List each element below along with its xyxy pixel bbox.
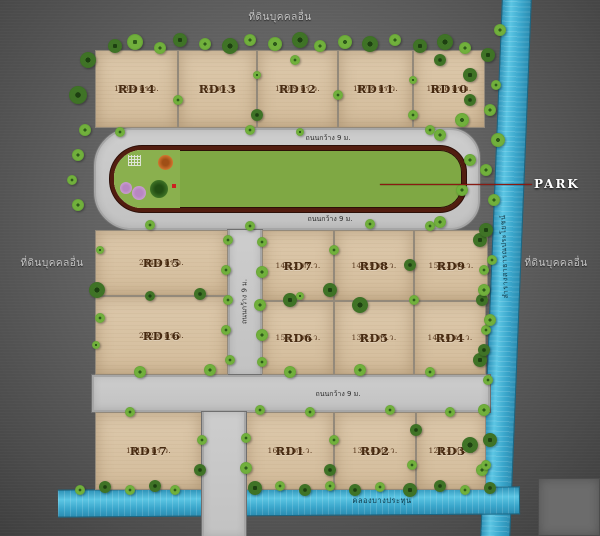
plot-area: 222.6 ตร.ว. (139, 330, 184, 342)
bush-icon (173, 95, 183, 105)
plot-area: 137.4 ตร.ว. (351, 332, 396, 344)
bush-icon (79, 124, 91, 136)
bush-icon (127, 34, 143, 50)
bush-icon (244, 34, 256, 46)
tree-icon (299, 484, 311, 496)
bush-icon (409, 76, 417, 84)
bush-icon (154, 42, 166, 54)
plot-RD2: RD2 130.6 ตร.ว. (334, 412, 416, 490)
tree-icon (80, 52, 96, 68)
bush-icon (268, 37, 282, 51)
bush-icon (329, 435, 339, 445)
plot-RD11: RD11 147.8 ตร.ว. (338, 50, 413, 128)
bush-icon (134, 366, 146, 378)
bush-icon (204, 364, 216, 376)
plot-RD15: RD15 234.4 ตร.ว. (95, 230, 228, 296)
tree-icon (149, 480, 161, 492)
plot-area: 165.3 ตร.ว. (267, 445, 312, 457)
bush-icon (407, 460, 417, 470)
tree-icon (150, 180, 168, 198)
bush-icon (223, 295, 233, 305)
bush-icon (275, 481, 285, 491)
bush-icon (72, 199, 84, 211)
plot-RD14: RD14 153.4 ตร.ว. (95, 50, 178, 128)
road-width-label-vertical: ถนนกว้าง 9 ม. (240, 252, 251, 352)
bush-icon (92, 341, 100, 349)
bush-icon (455, 113, 469, 127)
plot-RD8: RD8 143.9 ตร.ว. (334, 230, 414, 301)
plot-area: 150.9 ตร.ว. (275, 83, 320, 95)
autumn-tree-icon (158, 155, 173, 170)
plot-RD3: RD3 124.4 ตร.ว. (416, 412, 486, 490)
bush-icon (385, 405, 395, 415)
bush-icon (296, 292, 304, 300)
plot-area: 147.8 ตร.ว. (353, 83, 398, 95)
bush-icon (434, 129, 446, 141)
tree-icon (478, 344, 490, 356)
tree-icon (404, 259, 416, 271)
canal-bottom-label: คลองบางประทุน (322, 495, 442, 507)
bush-icon (434, 216, 446, 228)
park-leader-line (380, 184, 532, 185)
bush-icon (240, 462, 252, 474)
bush-icon (256, 266, 268, 278)
bush-icon (494, 24, 506, 36)
bush-icon (199, 38, 211, 50)
plot-area: 156.8 ตร.ว. (426, 83, 471, 95)
bush-icon (125, 485, 135, 495)
tree-icon (437, 34, 453, 50)
bush-icon (290, 55, 300, 65)
tree-icon (410, 424, 422, 436)
bush-icon (95, 313, 105, 323)
adjacent-land-label-top: ที่ดินบุคคลอื่น (200, 10, 360, 25)
bush-icon (221, 325, 231, 335)
tree-icon (173, 33, 187, 47)
bush-icon (96, 246, 104, 254)
bush-icon (329, 245, 339, 255)
bush-icon (225, 355, 235, 365)
bush-icon (256, 329, 268, 341)
road-width-label-north: ถนนกว้าง 9 ม. (278, 133, 378, 144)
bush-icon (365, 219, 375, 229)
bush-icon (481, 325, 491, 335)
bush-icon (484, 104, 496, 116)
bush-icon (459, 42, 471, 54)
bush-icon (480, 164, 492, 176)
plot-area: 145.2 ตร.ว. (275, 260, 320, 272)
bush-icon (67, 175, 77, 185)
tree-icon (89, 282, 105, 298)
bush-icon (170, 485, 180, 495)
bush-icon (460, 485, 470, 495)
bush-icon (491, 80, 501, 90)
tree-icon (413, 39, 427, 53)
tree-icon (483, 433, 497, 447)
plot-area: 155.7 ตร.ว. (275, 332, 320, 344)
bush-icon (478, 284, 490, 296)
bush-icon (478, 404, 490, 416)
vertical-road-bridge (202, 412, 246, 536)
bush-icon (481, 460, 491, 470)
tree-icon (324, 464, 336, 476)
bush-icon (72, 149, 84, 161)
bush-icon (464, 154, 476, 166)
plot-RD1: RD1 165.3 ตร.ว. (246, 412, 334, 490)
tree-icon (99, 481, 111, 493)
tree-icon (145, 291, 155, 301)
bush-icon (456, 184, 468, 196)
bush-icon (333, 90, 343, 100)
bush-icon (408, 110, 418, 120)
plot-area: 151.3 ตร.ว. (428, 260, 473, 272)
bush-icon (338, 35, 352, 49)
bush-icon (115, 127, 125, 137)
tree-icon (251, 109, 263, 121)
tree-icon (462, 437, 478, 453)
bush-icon (223, 235, 233, 245)
plot-area: 234.4 ตร.ว. (139, 257, 184, 269)
bush-icon (254, 299, 266, 311)
bush-icon (305, 407, 315, 417)
bush-icon (375, 482, 385, 492)
tree-icon (292, 32, 308, 48)
tree-icon (283, 293, 297, 307)
bush-icon (389, 34, 401, 46)
tree-icon (194, 464, 206, 476)
plot-RD10: RD10 156.8 ตร.ว. (413, 50, 485, 128)
bush-icon (75, 485, 85, 495)
bush-icon (491, 133, 505, 147)
adjacent-land-label-left: ที่ดินบุคคลอื่น (4, 256, 100, 271)
bush-icon (197, 435, 207, 445)
road-width-label-south: ถนนกว้าง 9 ม. (288, 389, 388, 400)
park-lawn-east (114, 150, 180, 208)
bush-icon (145, 220, 155, 230)
bush-icon (255, 405, 265, 415)
tree-icon (463, 68, 477, 82)
bush-icon (409, 295, 419, 305)
plot-RD6: RD6 155.7 ตร.ว. (262, 301, 334, 375)
tree-icon (248, 481, 262, 495)
bush-icon (241, 433, 251, 443)
bush-icon (354, 364, 366, 376)
bush-icon (325, 481, 335, 491)
blossom-tree-icon (120, 182, 132, 194)
park-marker-icon (172, 184, 176, 188)
tree-icon (349, 484, 361, 496)
tree-icon (194, 288, 206, 300)
tree-icon (479, 223, 493, 237)
tree-icon (403, 483, 417, 497)
bush-icon (245, 125, 255, 135)
tree-icon (108, 39, 122, 53)
bush-icon (296, 128, 304, 136)
tree-icon (362, 36, 378, 52)
park-label: PARK (534, 177, 580, 191)
bush-icon (488, 194, 500, 206)
bush-icon (487, 255, 497, 265)
bush-icon (445, 407, 455, 417)
bush-icon (484, 314, 496, 326)
bush-icon (425, 367, 435, 377)
blossom-tree-icon (132, 186, 146, 200)
plot-area: 140.6 ตร.ว. (427, 332, 472, 344)
plot-area: 143.9 ตร.ว. (351, 260, 396, 272)
tree-icon (481, 48, 495, 62)
bush-icon (257, 357, 267, 367)
bush-icon (221, 265, 231, 275)
tree-icon (434, 480, 446, 492)
tree-icon (464, 94, 476, 106)
plot-area: 191.4 ตร.ว. (126, 445, 171, 457)
lattice-icon (128, 155, 141, 166)
tree-icon (434, 54, 446, 66)
plot-RD5: RD5 137.4 ตร.ว. (334, 301, 414, 375)
bush-icon (245, 221, 255, 231)
tree-icon (352, 297, 368, 313)
bush-icon (253, 71, 261, 79)
tree-icon (69, 86, 87, 104)
bush-icon (483, 375, 493, 385)
bush-icon (125, 407, 135, 417)
plot-area: 130.6 ตร.ว. (352, 445, 397, 457)
tree-icon (323, 283, 337, 297)
plot-RD17: RD17 191.4 ตร.ว. (95, 412, 202, 490)
adjacent-parcel-southeast (538, 478, 600, 536)
plot-RD13: RD13 154 ตร.ว. (178, 50, 257, 128)
bush-icon (257, 237, 267, 247)
bush-icon (314, 40, 326, 52)
master-plan-map: RD14 153.4 ตร.ว. RD13 154 ตร.ว. RD12 150… (0, 0, 600, 536)
central-park (110, 146, 466, 212)
adjacent-land-label-right: ที่ดินบุคคลอื่น (512, 256, 600, 271)
plot-area: 154 ตร.ว. (199, 83, 236, 95)
bush-icon (284, 366, 296, 378)
bush-icon (479, 265, 489, 275)
tree-icon (484, 482, 496, 494)
tree-icon (222, 38, 238, 54)
plot-area: 153.4 ตร.ว. (114, 83, 159, 95)
